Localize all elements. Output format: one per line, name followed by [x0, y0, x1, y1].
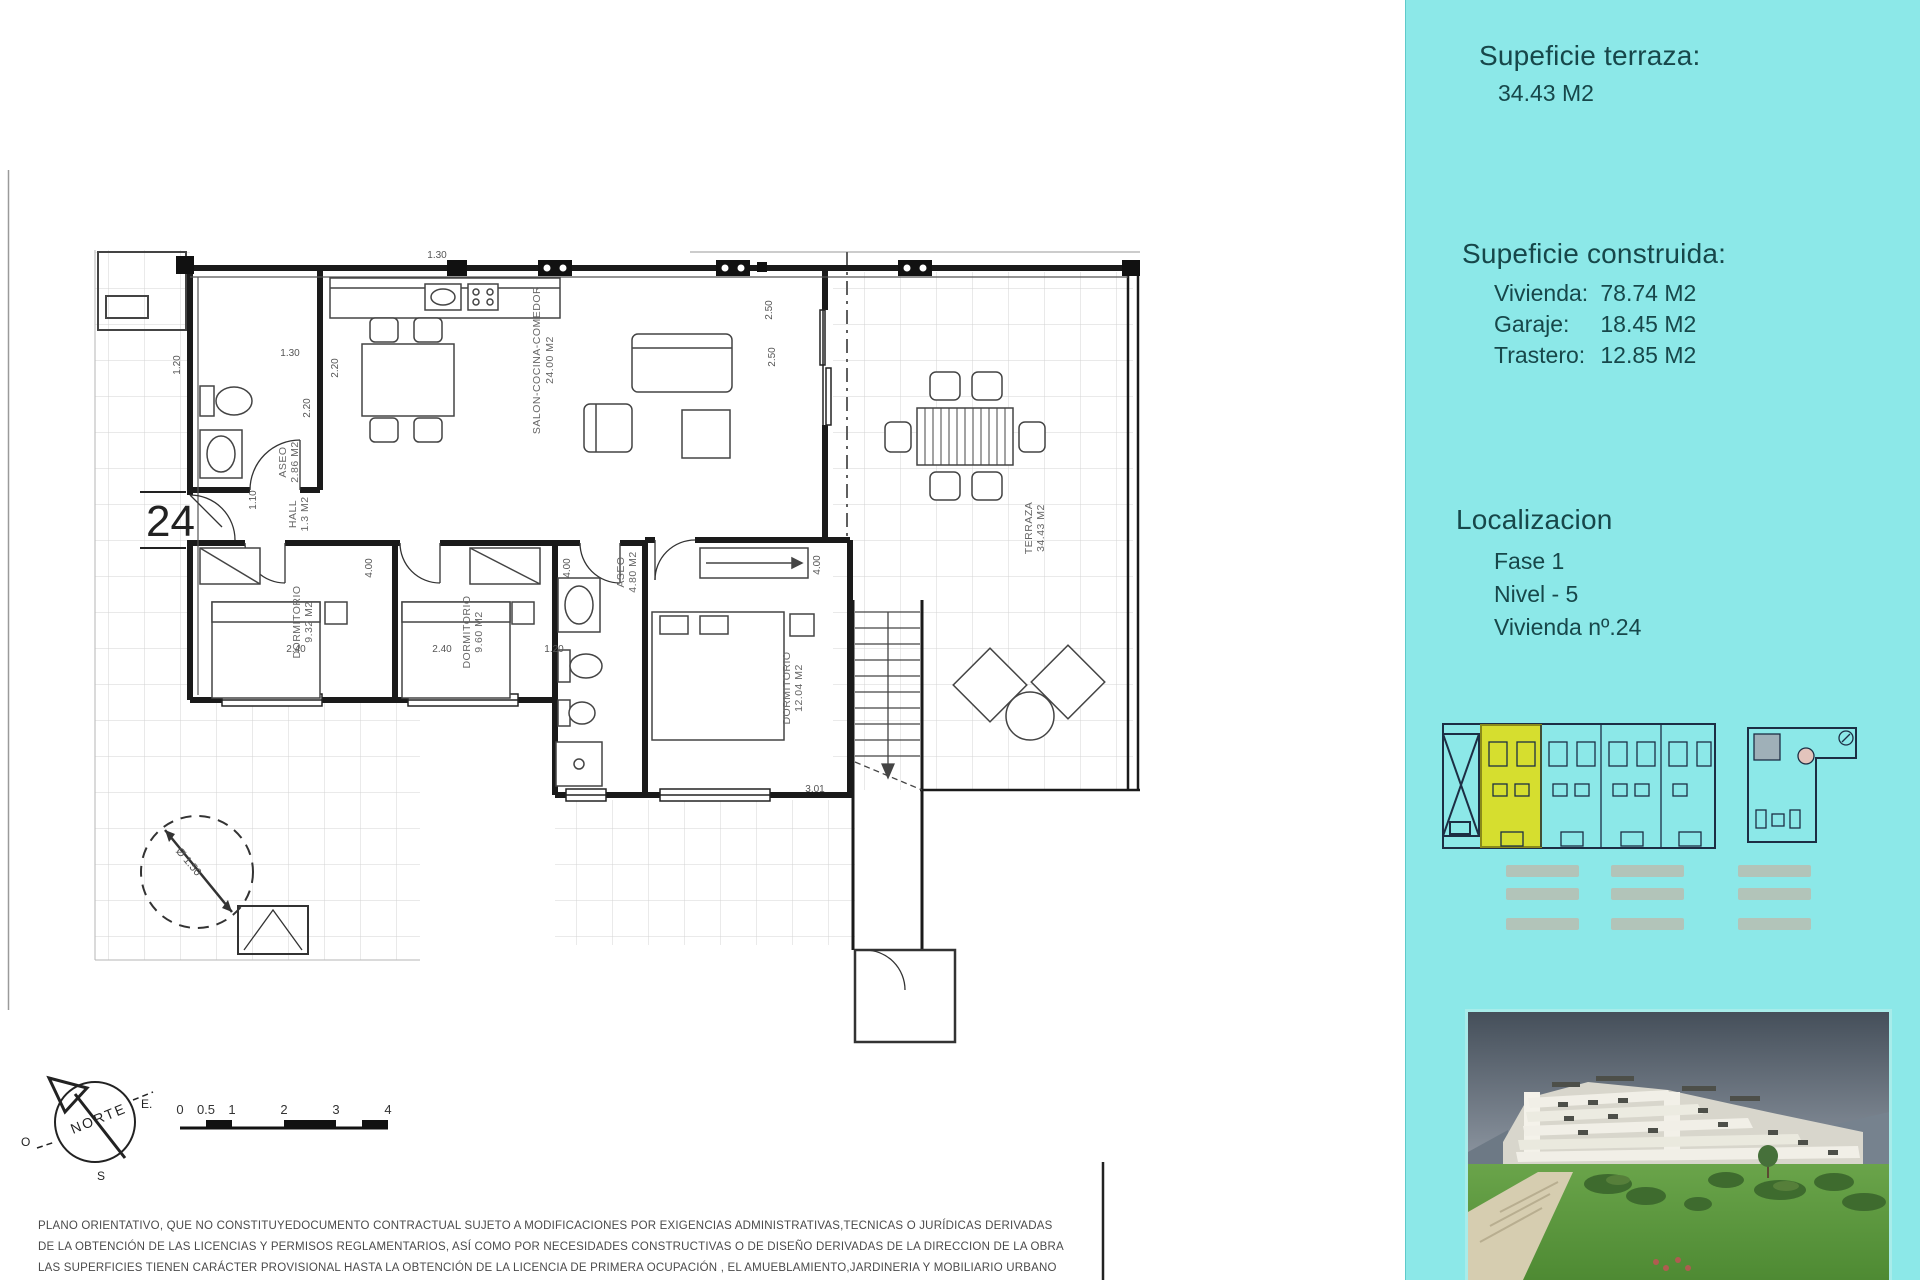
built-surface-heading: Supeficie construida:	[1462, 238, 1726, 270]
svg-text:2.20: 2.20	[330, 358, 341, 378]
svg-text:2.50: 2.50	[767, 347, 778, 367]
scale-bar: 0 0.5 1 2 3 4	[176, 1102, 391, 1128]
room-area: 9.60 M2	[473, 611, 485, 652]
svg-text:1.30: 1.30	[427, 250, 447, 261]
detached-unit	[1748, 728, 1856, 842]
room-label: DORMITORIO	[781, 651, 793, 724]
svg-text:O: O	[21, 1135, 30, 1149]
development-photo	[1465, 1009, 1892, 1280]
room-label: DORMITORIO	[461, 595, 473, 668]
location-row: Vivienda nº.24	[1494, 614, 1641, 641]
room-label: ASEO	[277, 446, 289, 477]
disclaimer-line: DE LA OBTENCIÓN DE LAS LICENCIAS Y PERMI…	[38, 1237, 1098, 1258]
svg-text:0: 0	[176, 1102, 183, 1117]
svg-text:4.00: 4.00	[364, 558, 375, 578]
built-row-label: Garaje:	[1494, 311, 1594, 338]
svg-text:24: 24	[146, 497, 195, 546]
highlighted-unit	[1481, 725, 1541, 847]
svg-text:NORTE: NORTE	[68, 1100, 128, 1137]
svg-text:2.50: 2.50	[764, 300, 775, 320]
furniture-dining	[362, 318, 454, 442]
disclaimer-line: PLANO ORIENTATIVO, QUE NO CONSTITUYEDOCU…	[38, 1216, 1098, 1237]
location-key-plan	[1418, 712, 1888, 962]
room-label: TERRAZA	[1023, 502, 1035, 555]
svg-text:2.40: 2.40	[432, 644, 452, 655]
faded-reference-stripes	[1506, 865, 1811, 930]
svg-text:2.20: 2.20	[302, 398, 313, 418]
room-area: 24.00 M2	[544, 336, 556, 384]
svg-text:4: 4	[384, 1102, 391, 1117]
north-arrow-icon: NORTE E. O S	[21, 1078, 153, 1183]
svg-text:3: 3	[332, 1102, 339, 1117]
built-surface-row: Garaje: 18.45 M2	[1494, 311, 1696, 338]
terrace-surface-value: 34.43 M2	[1498, 80, 1594, 107]
location-heading: Localizacion	[1456, 504, 1613, 536]
lower-landing	[855, 950, 955, 1042]
svg-text:1.30: 1.30	[280, 348, 300, 359]
room-label: SALON-COCINA-COMEDOR	[531, 286, 543, 434]
info-panel: Supeficie terraza: 34.43 M2 Supeficie co…	[1405, 0, 1920, 1280]
svg-text:2: 2	[280, 1102, 287, 1117]
built-surface-row: Vivienda: 78.74 M2	[1494, 280, 1696, 307]
room-area: 12.04 M2	[793, 664, 805, 712]
disclaimer-text: PLANO ORIENTATIVO, QUE NO CONSTITUYEDOCU…	[38, 1216, 1098, 1279]
room-area: 2.86 M2	[289, 441, 301, 482]
floor-plan-drawing: Ø 1.50 24 ASEO 2.86 M2 HALL 1.3 M2 SALON…	[0, 0, 1405, 1280]
location-row: Fase 1	[1494, 548, 1564, 575]
plan-sheet: Ø 1.50 24 ASEO 2.86 M2 HALL 1.3 M2 SALON…	[0, 0, 1920, 1280]
room-label: ASEO	[615, 556, 627, 587]
room-area: 34.43 M2	[1035, 504, 1047, 552]
svg-text:1.10: 1.10	[248, 490, 259, 510]
fixtures-aseo-2	[556, 578, 602, 786]
svg-text:4.00: 4.00	[812, 555, 823, 575]
built-row-label: Vivienda:	[1494, 280, 1594, 307]
room-label: HALL	[287, 500, 299, 528]
svg-text:S: S	[97, 1169, 105, 1183]
disclaimer-line: LAS SUPERFICIES TIENEN CARÁCTER PROVISIO…	[38, 1258, 1098, 1279]
furniture-living	[584, 334, 732, 458]
svg-text:4.00: 4.00	[562, 558, 573, 578]
location-row: Nivel - 5	[1494, 581, 1578, 608]
svg-text:1: 1	[228, 1102, 235, 1117]
fixtures-aseo-1	[200, 386, 252, 478]
built-surface-row: Trastero: 12.85 M2	[1494, 342, 1696, 369]
svg-text:3.01: 3.01	[805, 784, 825, 795]
built-row-value: 12.85 M2	[1600, 342, 1696, 368]
furniture-kitchen	[330, 278, 560, 318]
terrace-surface-heading: Supeficie terraza:	[1479, 40, 1701, 72]
svg-text:0.5: 0.5	[197, 1102, 215, 1117]
built-row-label: Trastero:	[1494, 342, 1594, 369]
built-row-value: 78.74 M2	[1600, 280, 1696, 306]
svg-text:1.20: 1.20	[172, 355, 183, 375]
svg-text:1.20: 1.20	[544, 644, 564, 655]
room-area: 1.3 M2	[299, 496, 311, 531]
room-area: 4.80 M2	[627, 551, 639, 592]
furniture-bedroom-1	[200, 548, 347, 698]
svg-text:2.40: 2.40	[286, 644, 306, 655]
built-row-value: 18.45 M2	[1600, 311, 1696, 337]
unit-number: 24	[140, 492, 195, 548]
svg-text:E.: E.	[141, 1097, 152, 1111]
room-area: 9.32 M2	[303, 601, 315, 642]
